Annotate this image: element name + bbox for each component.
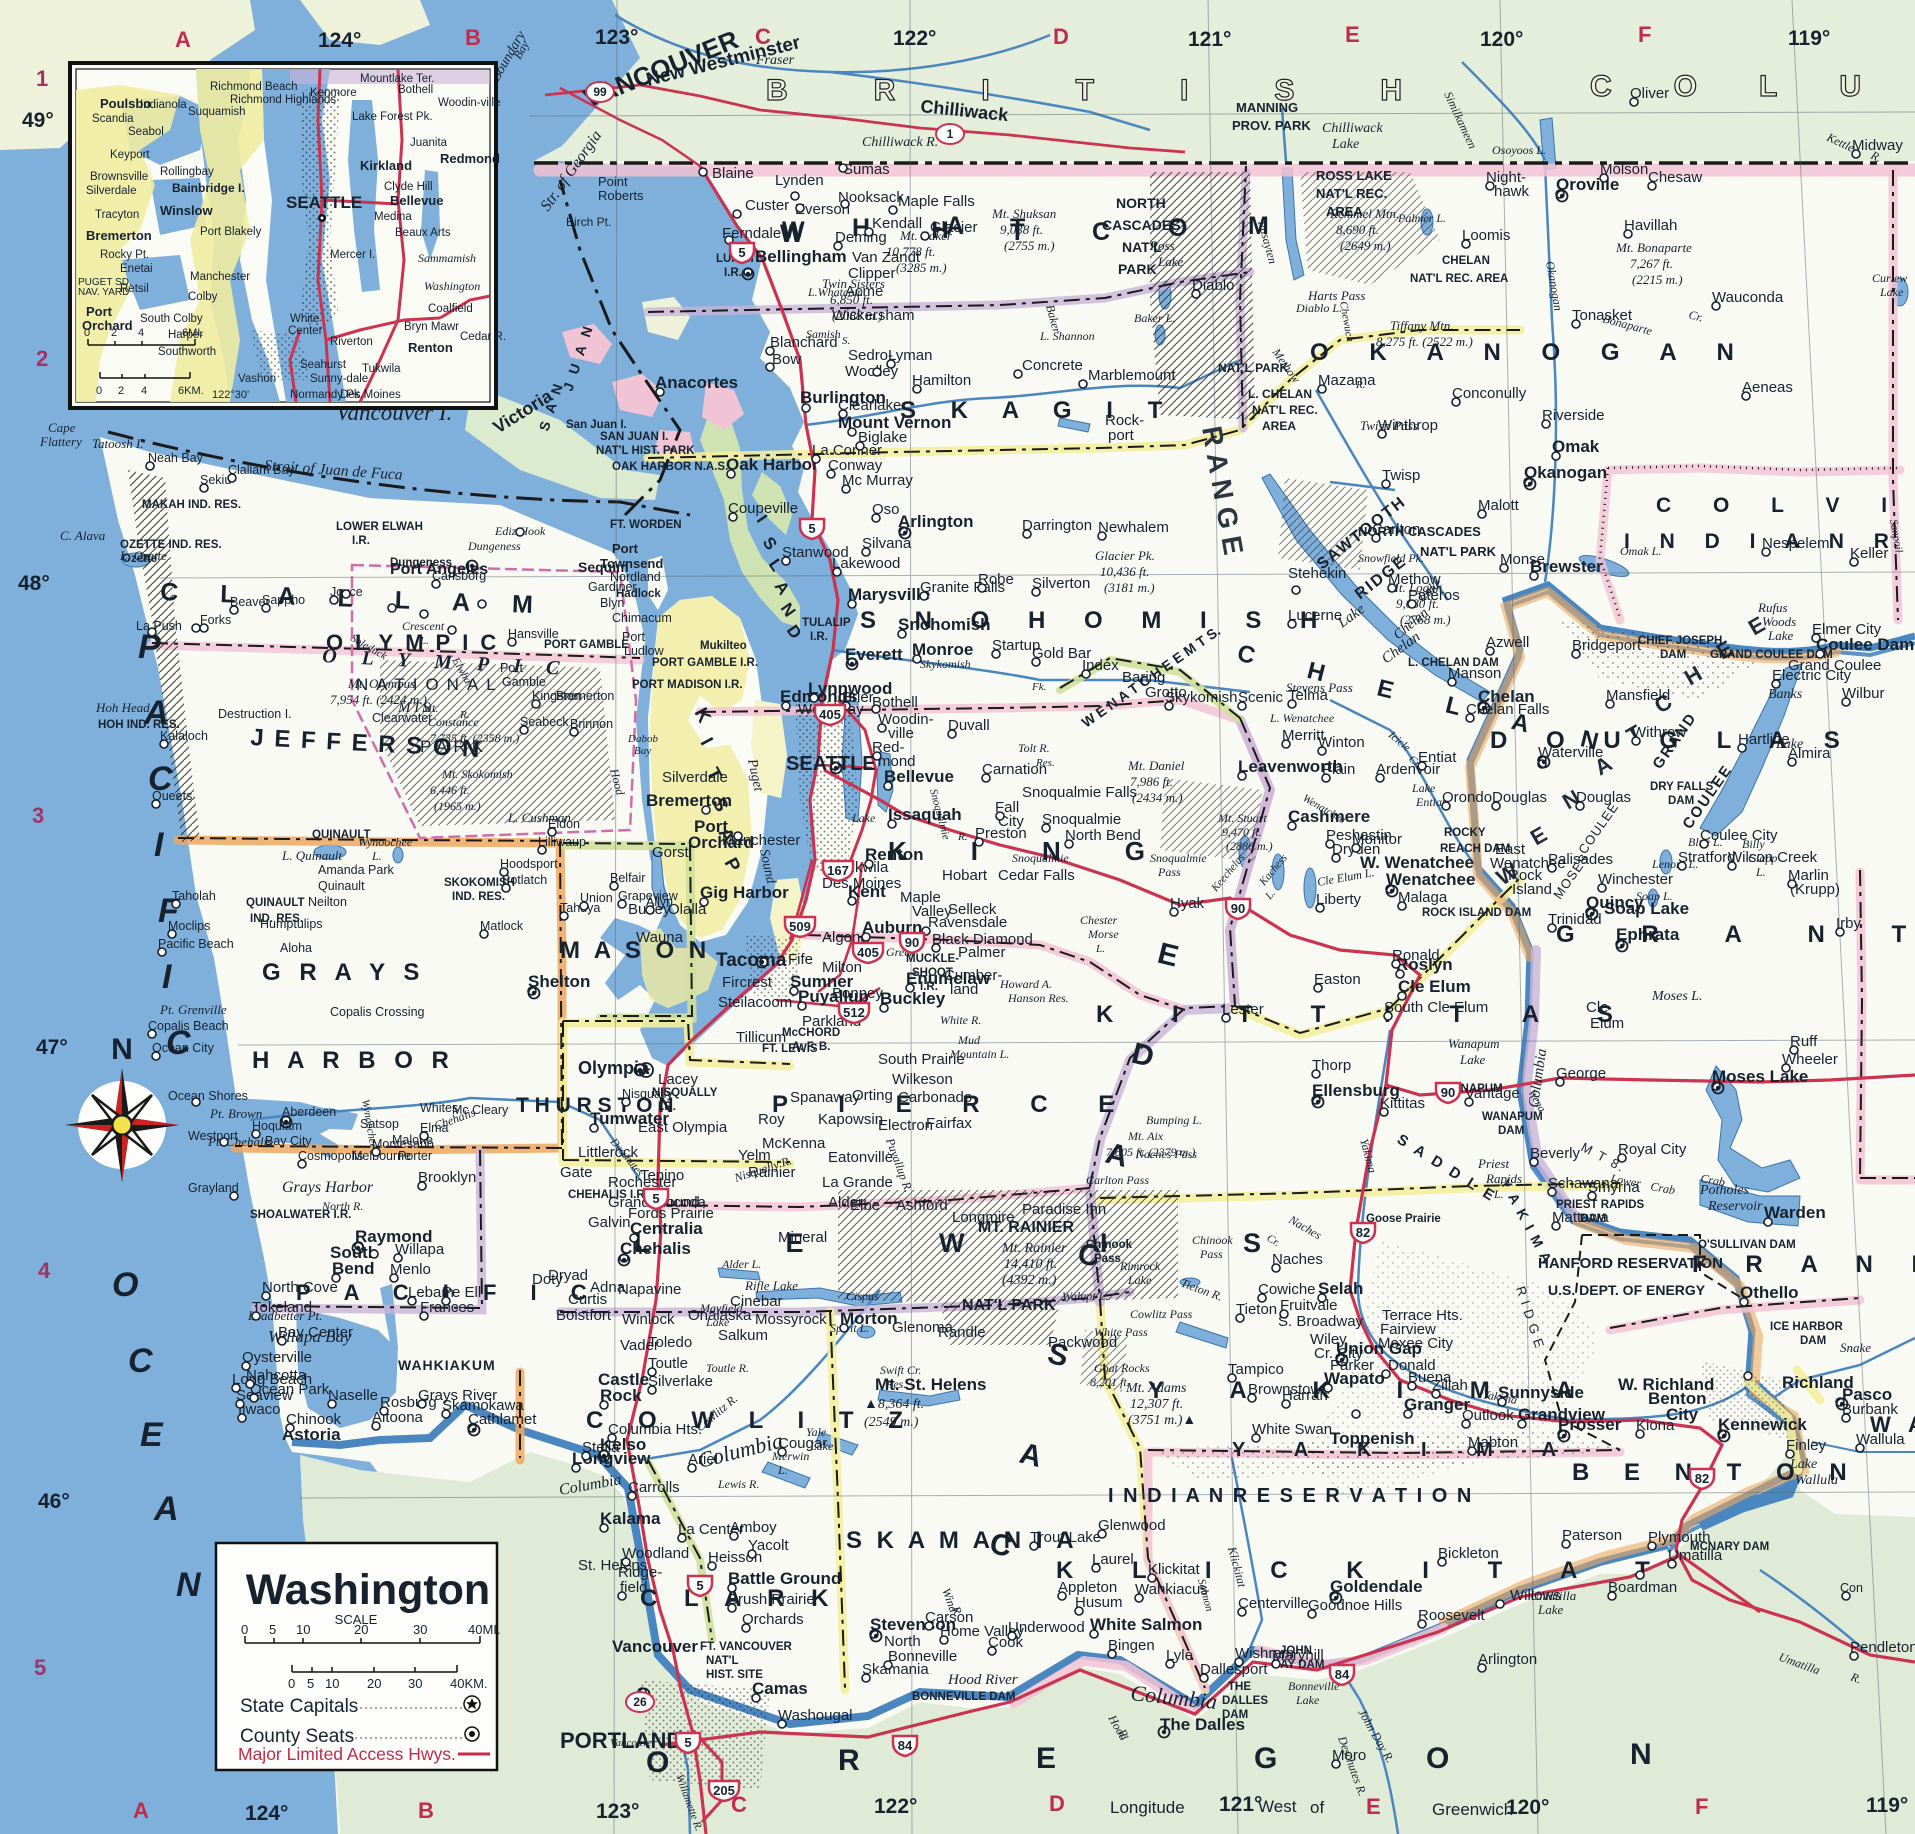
svg-text:Willapa: Willapa <box>395 1241 445 1258</box>
svg-text:Mukilteo: Mukilteo <box>700 640 747 652</box>
svg-text:405: 405 <box>857 945 879 960</box>
svg-text:T: T <box>1010 214 1025 242</box>
svg-text:Wheeler: Wheeler <box>1782 1051 1838 1068</box>
svg-text:NAT'L REC.: NAT'L REC. <box>1316 186 1387 201</box>
svg-text:(Krupp): (Krupp) <box>1790 881 1840 898</box>
svg-text:Anacortes: Anacortes <box>655 373 738 392</box>
svg-text:Mc Murray: Mc Murray <box>842 472 913 489</box>
svg-text:Toutle R.: Toutle R. <box>706 1361 749 1375</box>
svg-text:5: 5 <box>808 521 815 536</box>
svg-text:Pt. Chehalis: Pt. Chehalis <box>207 1134 272 1149</box>
svg-text:Baker L.: Baker L. <box>1134 311 1175 325</box>
svg-text:Winlock: Winlock <box>622 1311 675 1328</box>
svg-text:5: 5 <box>738 245 745 260</box>
svg-text:L.: L. <box>777 1463 788 1477</box>
svg-text:C: C <box>166 1024 191 1062</box>
svg-text:Redmond: Redmond <box>440 151 500 166</box>
svg-text:Kalama: Kalama <box>600 1509 661 1528</box>
svg-text:MTS.: MTS. <box>397 700 438 716</box>
svg-text:Richmond Beach: Richmond Beach <box>210 81 298 93</box>
svg-text:Sammamish: Sammamish <box>418 251 476 265</box>
svg-text:47°: 47° <box>36 1036 68 1059</box>
svg-text:Dungeness: Dungeness <box>390 557 452 569</box>
svg-text:10,778 ft.: 10,778 ft. <box>886 244 935 259</box>
svg-text:S. Broadway: S. Broadway <box>1278 1313 1364 1330</box>
svg-text:46°: 46° <box>38 1490 70 1513</box>
svg-text:CHELAN: CHELAN <box>1442 255 1490 267</box>
svg-text:119°: 119° <box>1866 1794 1908 1817</box>
svg-text:Stehekin: Stehekin <box>1288 565 1346 582</box>
svg-text:Moxee City: Moxee City <box>1378 1335 1454 1352</box>
svg-text:Concrete: Concrete <box>1022 357 1083 374</box>
svg-text:St. Helens: St. Helens <box>578 1557 647 1574</box>
svg-text:12,307 ft.: 12,307 ft. <box>1130 1397 1183 1412</box>
svg-text:Point: Point <box>598 174 628 189</box>
svg-text:C O L V I L L E: C O L V I L L E <box>1656 494 1915 517</box>
svg-text:Goose Prairie: Goose Prairie <box>1366 1213 1441 1225</box>
svg-text:G: G <box>1254 1742 1277 1775</box>
svg-text:C: C <box>148 760 173 798</box>
svg-text:Arlington: Arlington <box>898 512 974 531</box>
svg-text:Osoyoos L.: Osoyoos L. <box>1492 143 1546 157</box>
svg-text:(2549 m.): (2549 m.) <box>864 1415 919 1430</box>
svg-text:Cowlitz Pass: Cowlitz Pass <box>1130 1307 1193 1321</box>
svg-text:121°: 121° <box>1219 1793 1262 1816</box>
svg-text:Lenore L.: Lenore L. <box>1651 857 1698 871</box>
svg-text:Grotto: Grotto <box>1145 684 1187 701</box>
svg-text:WANAPUM: WANAPUM <box>1482 1111 1543 1123</box>
svg-text:Bellingham: Bellingham <box>755 247 847 266</box>
svg-text:Grapeview: Grapeview <box>618 889 679 903</box>
svg-text:4: 4 <box>138 327 144 339</box>
svg-text:82: 82 <box>1695 1471 1709 1486</box>
svg-text:White Swan: White Swan <box>1252 1421 1332 1438</box>
svg-text:AREA: AREA <box>1326 204 1363 219</box>
svg-text:ROSS LAKE: ROSS LAKE <box>1316 168 1392 183</box>
svg-text:Res.: Res. <box>885 1377 906 1391</box>
svg-text:Rocky Pt.: Rocky Pt. <box>100 249 149 261</box>
svg-text:Glenwood: Glenwood <box>1098 1517 1166 1534</box>
svg-text:O: O <box>112 1266 138 1304</box>
svg-text:ROCK ISLAND DAM: ROCK ISLAND DAM <box>1422 907 1531 919</box>
svg-text:CHIEF JOSEPH: CHIEF JOSEPH <box>1638 635 1722 647</box>
svg-text:T H U R S T O N: T H U R S T O N <box>516 1094 674 1117</box>
svg-text:Hadlock: Hadlock <box>616 588 661 600</box>
svg-text:Ozette: Ozette <box>122 553 157 565</box>
svg-text:C: C <box>1092 218 1110 246</box>
svg-text:E: E <box>1366 1794 1381 1819</box>
svg-text:hawk: hawk <box>1494 183 1530 200</box>
svg-text:Marysville: Marysville <box>848 585 930 604</box>
svg-text:Bainbridge I.: Bainbridge I. <box>172 181 245 195</box>
svg-text:Wauconda: Wauconda <box>1712 289 1784 306</box>
svg-text:L. Shannon: L. Shannon <box>1039 329 1095 343</box>
svg-text:DAM: DAM <box>1668 795 1694 807</box>
svg-text:Dungeness: Dungeness <box>467 539 521 553</box>
svg-text:I.R.: I.R. <box>810 631 828 643</box>
svg-text:FT. WORDEN: FT. WORDEN <box>610 519 682 531</box>
svg-text:Elbe: Elbe <box>850 1197 880 1214</box>
svg-text:Camas: Camas <box>752 1679 808 1698</box>
svg-text:Manchester: Manchester <box>190 271 250 283</box>
svg-text:Bay: Bay <box>634 745 651 757</box>
svg-text:5: 5 <box>307 1676 314 1691</box>
svg-text:Toledo: Toledo <box>648 1334 692 1351</box>
svg-text:90: 90 <box>1231 901 1245 916</box>
svg-text:Samish: Samish <box>806 327 841 341</box>
svg-text:Palmer: Palmer <box>958 944 1006 961</box>
svg-text:PORT GAMBLE I.R.: PORT GAMBLE I.R. <box>652 657 758 669</box>
svg-text:Moses Lake: Moses Lake <box>1712 1067 1808 1086</box>
svg-text:Colby: Colby <box>188 291 218 303</box>
svg-text:Nordland: Nordland <box>610 570 661 584</box>
svg-text:W H: W H <box>782 217 1009 244</box>
svg-text:C. Alava: C. Alava <box>60 528 106 543</box>
svg-text:MCNARY DAM: MCNARY DAM <box>1690 1541 1769 1553</box>
svg-text:WAHKIAKUM: WAHKIAKUM <box>398 1357 496 1373</box>
svg-text:Rollingbay: Rollingbay <box>160 166 214 178</box>
svg-text:Woods: Woods <box>1762 614 1796 629</box>
svg-text:167: 167 <box>827 863 849 878</box>
svg-text:PORT GAMBLE: PORT GAMBLE <box>544 639 629 651</box>
svg-text:S.: S. <box>842 335 850 347</box>
svg-text:PORT MADISON I.R.: PORT MADISON I.R. <box>632 679 743 691</box>
svg-text:▲8,364 ft.: ▲8,364 ft. <box>864 1397 924 1412</box>
svg-text:Snoqualmie Falls: Snoqualmie Falls <box>1022 784 1137 801</box>
svg-text:Cowiche: Cowiche <box>1258 1281 1316 1298</box>
svg-text:123°: 123° <box>596 1800 639 1823</box>
svg-text:Lake Forest Pk.: Lake Forest Pk. <box>352 111 433 123</box>
svg-text:R.: R. <box>459 709 469 721</box>
svg-text:Diablo L.: Diablo L. <box>1295 301 1342 315</box>
svg-text:Winchester: Winchester <box>1598 871 1673 888</box>
svg-text:C: C <box>755 24 771 49</box>
svg-text:Constance: Constance <box>428 715 479 729</box>
svg-text:Goodnoe Hills: Goodnoe Hills <box>1308 1597 1402 1614</box>
svg-text:SHOOT: SHOOT <box>912 967 953 979</box>
svg-text:9,470 ft.: 9,470 ft. <box>1222 825 1262 839</box>
svg-text:D: D <box>1053 24 1069 49</box>
svg-text:Snake: Snake <box>1840 1340 1871 1355</box>
svg-text:119°: 119° <box>1788 27 1830 50</box>
svg-text:Morse: Morse <box>1087 927 1119 941</box>
svg-text:L.: L. <box>1755 865 1766 879</box>
svg-text:Beaux Arts: Beaux Arts <box>395 227 451 239</box>
svg-text:99: 99 <box>593 85 607 99</box>
svg-text:Y A K I M A: Y A K I M A <box>1232 1439 1578 1461</box>
svg-text:Potholes: Potholes <box>1699 1183 1750 1198</box>
svg-text:PARK: PARK <box>1118 261 1157 277</box>
svg-text:Coalfield: Coalfield <box>428 303 473 315</box>
svg-text:Chester: Chester <box>1080 913 1118 927</box>
svg-text:Chilliwack R.: Chilliwack R. <box>862 135 938 150</box>
svg-text:IND. RES.: IND. RES. <box>250 913 303 925</box>
svg-text:S K A M A N I A: S K A M A N I A <box>846 1527 1078 1554</box>
svg-text:40MI.: 40MI. <box>468 1622 501 1637</box>
svg-text:Gig Harbor: Gig Harbor <box>700 883 789 902</box>
svg-text:South Colby: South Colby <box>140 313 203 325</box>
svg-text:Lake: Lake <box>851 811 876 825</box>
svg-text:Des Moines: Des Moines <box>340 389 401 401</box>
svg-text:W. Richland: W. Richland <box>1618 1375 1714 1394</box>
svg-text:1: 1 <box>36 66 48 91</box>
svg-text:Aloha: Aloha <box>280 941 312 955</box>
svg-text:Amanda Park: Amanda Park <box>318 863 394 877</box>
svg-text:Lake: Lake <box>1411 781 1436 795</box>
svg-text:Hoh Head: Hoh Head <box>95 700 150 715</box>
svg-text:Soap L.: Soap L. <box>1636 889 1673 903</box>
svg-text:Fraser: Fraser <box>755 53 795 68</box>
svg-text:Bremerton: Bremerton <box>86 228 152 243</box>
svg-text:30: 30 <box>408 1676 422 1691</box>
svg-text:Orchards: Orchards <box>742 1611 804 1628</box>
svg-text:DALLES: DALLES <box>1222 1695 1268 1707</box>
svg-text:U.S. DEPT. OF ENERGY: U.S. DEPT. OF ENERGY <box>1548 1282 1706 1298</box>
svg-text:122°: 122° <box>893 27 936 50</box>
svg-text:Cispus: Cispus <box>846 1289 879 1303</box>
svg-text:(2886 m.): (2886 m.) <box>1226 839 1273 853</box>
svg-text:IND. RES.: IND. RES. <box>452 891 505 903</box>
svg-text:Southworth: Southworth <box>158 346 216 358</box>
svg-text:M A S O N: M A S O N <box>560 937 710 964</box>
svg-text:Kenmore: Kenmore <box>310 87 357 99</box>
svg-text:AREA: AREA <box>1262 419 1296 433</box>
svg-text:8,690 ft.: 8,690 ft. <box>1336 222 1379 237</box>
svg-text:Rufus: Rufus <box>1757 600 1788 615</box>
svg-text:C: C <box>128 1342 153 1380</box>
svg-text:Maple Falls: Maple Falls <box>898 193 975 210</box>
svg-text:14,410 ft.: 14,410 ft. <box>1004 1257 1057 1272</box>
svg-text:(3181 m.): (3181 m.) <box>1104 580 1155 595</box>
svg-text:Major Limited Access Hwys.: Major Limited Access Hwys. <box>238 1744 456 1764</box>
svg-text:Lynden: Lynden <box>775 172 824 189</box>
svg-text:Steilacoom: Steilacoom <box>718 994 792 1011</box>
svg-text:Mercer I.: Mercer I. <box>330 249 375 261</box>
svg-text:Ashford: Ashford <box>896 1197 948 1214</box>
svg-text:Electron: Electron <box>878 1117 933 1134</box>
svg-text:DAM: DAM <box>1498 1125 1524 1137</box>
svg-text:Wenatchee: Wenatchee <box>1386 870 1475 889</box>
svg-text:O K A N O G A N: O K A N O G A N <box>1310 339 1751 366</box>
svg-text:(2649 m.): (2649 m.) <box>1340 238 1391 253</box>
svg-text:Chimacum: Chimacum <box>612 611 672 625</box>
svg-text:90: 90 <box>905 935 919 950</box>
svg-text:Longitude: Longitude <box>1110 1798 1185 1817</box>
svg-text:Bow: Bow <box>772 351 801 368</box>
svg-text:Oak Harbor: Oak Harbor <box>726 455 819 474</box>
svg-text:10: 10 <box>325 1676 339 1691</box>
svg-text:Sunny-dale: Sunny-dale <box>310 373 368 385</box>
svg-text:Riverton: Riverton <box>330 336 373 348</box>
svg-text:White R.: White R. <box>940 1013 981 1027</box>
svg-text:mond: mond <box>878 753 916 770</box>
svg-text:Mt. Adams: Mt. Adams <box>1125 1381 1187 1396</box>
svg-text:Oysterville: Oysterville <box>242 1349 312 1366</box>
svg-text:Mountain L.: Mountain L. <box>949 1047 1009 1061</box>
svg-text:Copalis Crossing: Copalis Crossing <box>330 1005 425 1019</box>
svg-text:NISQUALLY: NISQUALLY <box>652 1087 718 1099</box>
svg-text:Rimrock: Rimrock <box>1119 1259 1161 1273</box>
svg-text:Bothell: Bothell <box>398 84 433 96</box>
svg-text:Richland: Richland <box>1782 1373 1854 1392</box>
svg-text:Lake: Lake <box>1157 254 1184 269</box>
svg-text:Bellevue: Bellevue <box>390 193 443 208</box>
svg-text:Neah Bay: Neah Bay <box>148 451 204 465</box>
svg-text:1: 1 <box>947 127 954 141</box>
svg-text:Lake: Lake <box>1879 285 1904 299</box>
svg-text:Marblemount: Marblemount <box>1088 367 1176 384</box>
svg-text:OAK HARBOR N.A.S.: OAK HARBOR N.A.S. <box>612 461 728 473</box>
svg-text:NAT'L HIST. PARK: NAT'L HIST. PARK <box>596 445 695 457</box>
svg-text:THE: THE <box>1228 1681 1251 1693</box>
svg-text:Cedar R.: Cedar R. <box>460 331 506 343</box>
svg-text:122°: 122° <box>874 1795 917 1818</box>
svg-text:R: R <box>838 1744 860 1777</box>
svg-text:F: F <box>158 892 180 930</box>
svg-text:Res.: Res. <box>1035 757 1055 769</box>
svg-text:REACH DAM: REACH DAM <box>1440 843 1510 855</box>
svg-text:Lake: Lake <box>1459 1052 1486 1067</box>
svg-text:124°: 124° <box>318 29 361 52</box>
svg-text:Chilliwack: Chilliwack <box>1322 121 1383 136</box>
svg-text:Blaine: Blaine <box>712 165 754 182</box>
svg-text:A: A <box>946 212 964 240</box>
svg-text:A: A <box>175 27 191 52</box>
svg-text:HIST. SITE: HIST. SITE <box>706 1669 763 1681</box>
svg-text:0: 0 <box>288 1676 295 1691</box>
svg-text:Rifle Lake: Rifle Lake <box>744 1278 798 1293</box>
svg-text:Mt. Skokomish: Mt. Skokomish <box>441 767 513 781</box>
svg-text:Washington: Washington <box>246 1566 490 1614</box>
svg-text:Bridgeport: Bridgeport <box>1572 637 1642 654</box>
svg-text:49°: 49° <box>22 109 54 132</box>
svg-text:A: A <box>143 694 169 732</box>
svg-text:Silverlake: Silverlake <box>648 1373 713 1390</box>
svg-text:Porter: Porter <box>398 1149 432 1163</box>
svg-text:Paterson: Paterson <box>1562 1527 1622 1544</box>
svg-text:5: 5 <box>34 1655 46 1680</box>
svg-text:Pass: Pass <box>1157 865 1181 879</box>
svg-text:Salkum: Salkum <box>718 1327 768 1344</box>
svg-text:Howard A.: Howard A. <box>999 977 1052 991</box>
svg-text:7,267 ft.: 7,267 ft. <box>1630 256 1673 271</box>
svg-text:Tiffany Mtn.: Tiffany Mtn. <box>1390 318 1454 333</box>
svg-text:10,436 ft.: 10,436 ft. <box>1100 564 1149 579</box>
svg-text:White Pass: White Pass <box>1094 1325 1148 1339</box>
svg-text:Silverton: Silverton <box>1032 575 1090 592</box>
svg-text:Spirit L.: Spirit L. <box>830 1321 869 1335</box>
svg-text:L.Whatcom: L.Whatcom <box>807 285 863 299</box>
svg-text:Harper: Harper <box>168 329 203 341</box>
svg-text:PORTLAND: PORTLAND <box>560 1728 682 1753</box>
svg-text:DRY FALLS: DRY FALLS <box>1650 781 1714 793</box>
svg-text:Brooklyn: Brooklyn <box>418 1169 476 1186</box>
svg-text:Winslow: Winslow <box>160 203 213 218</box>
svg-text:O'SULLIVAN DAM: O'SULLIVAN DAM <box>1698 1239 1796 1251</box>
svg-text:Lakewood: Lakewood <box>832 555 900 572</box>
svg-text:6,446 ft.: 6,446 ft. <box>430 783 470 797</box>
svg-text:Hoodsport: Hoodsport <box>500 857 558 871</box>
svg-text:20: 20 <box>367 1676 381 1691</box>
svg-text:G R A N T: G R A N T <box>1556 921 1915 948</box>
svg-text:Lake: Lake <box>809 1439 834 1453</box>
svg-text:DAM: DAM <box>1800 1335 1826 1347</box>
svg-text:120°: 120° <box>1480 28 1523 51</box>
svg-text:10: 10 <box>296 1622 310 1637</box>
svg-text:Retsil: Retsil <box>120 283 149 295</box>
svg-text:Merwin: Merwin <box>771 1449 809 1463</box>
svg-text:Grandview: Grandview <box>1518 1405 1606 1424</box>
svg-text:Lake: Lake <box>1537 1602 1564 1617</box>
svg-text:Suquamish: Suquamish <box>188 106 246 118</box>
svg-text:QUINAULT: QUINAULT <box>312 829 371 841</box>
svg-text:(1965 m.): (1965 m.) <box>434 799 481 813</box>
svg-text:Cedar Falls: Cedar Falls <box>998 867 1075 884</box>
svg-text:Fife: Fife <box>788 951 813 968</box>
svg-text:Island: Island <box>1512 881 1552 898</box>
svg-text:84: 84 <box>898 1738 913 1753</box>
svg-text:Lacey: Lacey <box>658 1071 699 1088</box>
svg-text:Mt. Daniel: Mt. Daniel <box>1127 758 1185 773</box>
svg-text:Silverdale: Silverdale <box>86 185 137 197</box>
svg-text:Carlton Pass: Carlton Pass <box>1086 1173 1149 1187</box>
svg-text:Mt. Bonaparte: Mt. Bonaparte <box>1615 240 1692 255</box>
svg-text:123°: 123° <box>595 26 638 49</box>
svg-text:S K A G I T: S K A G I T <box>900 397 1176 424</box>
svg-text:Chesaw: Chesaw <box>1648 169 1702 186</box>
svg-text:Issaquah: Issaquah <box>888 805 962 824</box>
svg-text:SAN JUAN I.: SAN JUAN I. <box>600 431 668 443</box>
svg-text:(2215 m.): (2215 m.) <box>1632 272 1683 287</box>
svg-text:Okanogan: Okanogan <box>1524 463 1607 482</box>
svg-text:Destruction I.: Destruction I. <box>218 707 292 721</box>
svg-text:Snoqualmie: Snoqualmie <box>1042 811 1121 828</box>
svg-text:2: 2 <box>36 346 48 371</box>
svg-text:E: E <box>140 1416 164 1454</box>
svg-text:C L A R K: C L A R K <box>640 1585 838 1612</box>
svg-text:B E N T O N: B E N T O N <box>1572 1459 1861 1486</box>
svg-text:Woodin-ville: Woodin-ville <box>438 97 500 109</box>
svg-text:MAKAH IND. RES.: MAKAH IND. RES. <box>142 499 241 511</box>
svg-text:Othello: Othello <box>1740 1283 1799 1302</box>
svg-text:Ocean Shores: Ocean Shores <box>168 1089 248 1103</box>
svg-text:84: 84 <box>1335 1667 1350 1682</box>
svg-text:Cle Elum: Cle Elum <box>1398 977 1471 996</box>
svg-text:Arlington: Arlington <box>1478 1651 1537 1668</box>
svg-text:Darrington: Darrington <box>1022 517 1092 534</box>
svg-text:Douglas: Douglas <box>1576 789 1631 806</box>
svg-text:Gorst: Gorst <box>652 844 690 861</box>
svg-text:Hobart: Hobart <box>942 867 988 884</box>
svg-text:Mt. Stuart: Mt. Stuart <box>1217 811 1267 825</box>
svg-text:Tampico: Tampico <box>1228 1361 1284 1378</box>
svg-text:P I E R C E: P I E R C E <box>772 1091 1136 1118</box>
svg-text:Bonneville: Bonneville <box>888 1648 957 1665</box>
svg-text:Pt. Grenville: Pt. Grenville <box>159 1002 227 1017</box>
svg-text:Kennewick: Kennewick <box>1718 1415 1807 1434</box>
svg-text:122°30': 122°30' <box>212 389 249 401</box>
svg-text:Clearlake: Clearlake <box>838 397 901 414</box>
svg-text:405: 405 <box>819 707 841 722</box>
svg-text:Hanson Res.: Hanson Res. <box>1007 991 1069 1005</box>
svg-text:MANNING: MANNING <box>1236 100 1298 115</box>
svg-text:Y A K I M A: Y A K I M A <box>1148 1377 1603 1404</box>
svg-text:Sedro-: Sedro- <box>848 347 893 364</box>
svg-text:DAM: DAM <box>1222 1709 1248 1721</box>
svg-text:D: D <box>1049 1791 1065 1816</box>
svg-text:SEATTLE: SEATTLE <box>286 193 362 212</box>
svg-text:W A: W A <box>1870 1412 1915 1437</box>
